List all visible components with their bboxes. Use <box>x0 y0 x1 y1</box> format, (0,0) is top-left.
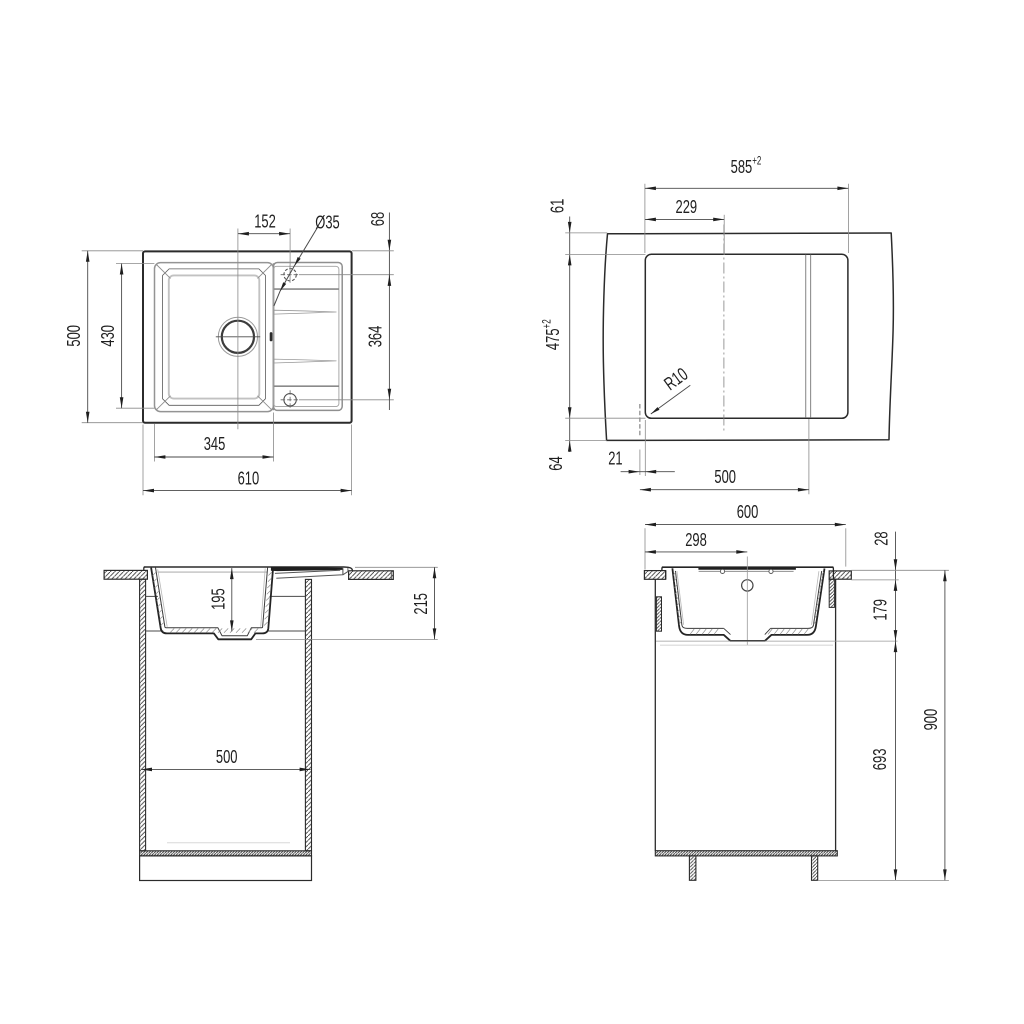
svg-text:500: 500 <box>216 748 238 768</box>
svg-text:61: 61 <box>549 199 569 213</box>
svg-text:152: 152 <box>254 213 276 233</box>
svg-text:500: 500 <box>714 468 736 488</box>
svg-text:Ø35: Ø35 <box>315 214 340 234</box>
svg-text:195: 195 <box>209 588 229 610</box>
svg-text:500: 500 <box>65 325 85 347</box>
svg-text:28: 28 <box>872 531 892 545</box>
svg-text:600: 600 <box>737 503 759 523</box>
svg-text:364: 364 <box>366 326 386 348</box>
svg-text:229: 229 <box>676 198 698 218</box>
svg-text:64: 64 <box>547 456 567 470</box>
svg-text:179: 179 <box>872 599 892 621</box>
svg-text:298: 298 <box>685 531 707 551</box>
svg-text:215: 215 <box>412 593 432 615</box>
svg-text:21: 21 <box>608 449 622 469</box>
svg-text:68: 68 <box>369 212 389 226</box>
svg-text:430: 430 <box>99 325 119 347</box>
svg-text:345: 345 <box>204 435 226 455</box>
svg-text:900: 900 <box>922 709 942 731</box>
svg-text:693: 693 <box>871 749 891 771</box>
svg-text:610: 610 <box>238 470 260 490</box>
